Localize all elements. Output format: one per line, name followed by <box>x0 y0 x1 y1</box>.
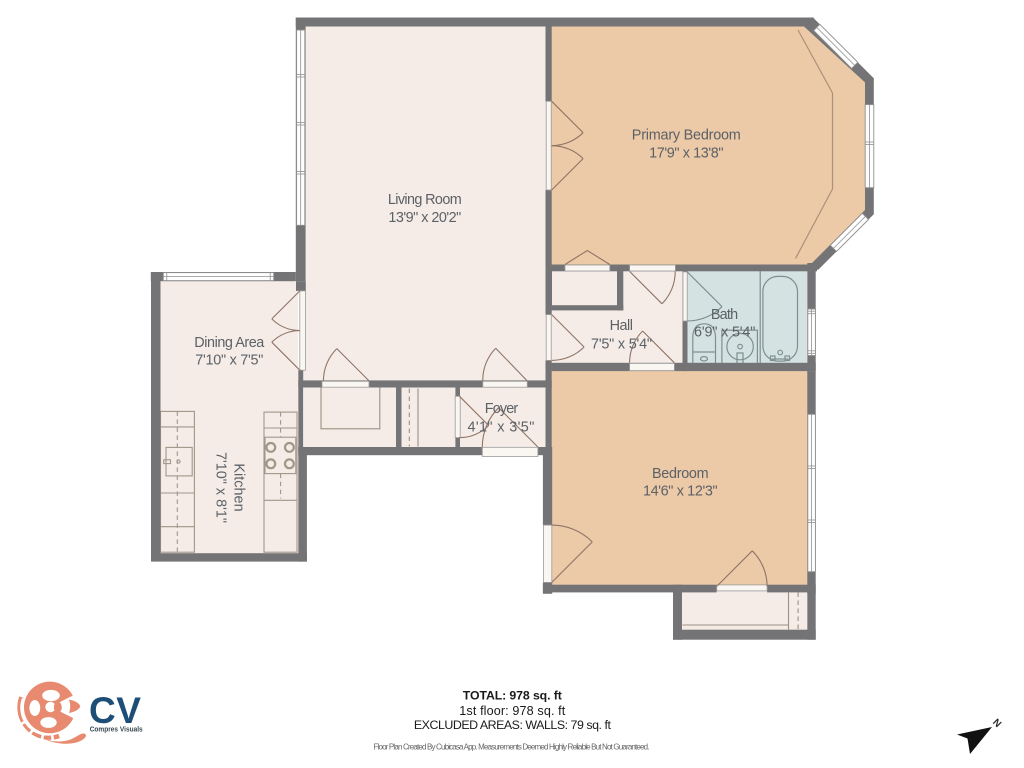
svg-text:Bath: Bath <box>711 307 738 323</box>
svg-text:4'1" x 3'5": 4'1" x 3'5" <box>468 419 535 435</box>
svg-text:6'9" x 5'4": 6'9" x 5'4" <box>694 324 755 340</box>
svg-text:14'6" x 12'3": 14'6" x 12'3" <box>643 484 718 500</box>
svg-text:TOTAL: 978 sq. ft: TOTAL: 978 sq. ft <box>463 689 562 703</box>
svg-text:17'9" x 13'8": 17'9" x 13'8" <box>649 145 723 161</box>
svg-text:Compres Visuals: Compres Visuals <box>90 725 143 734</box>
svg-text:Foyer: Foyer <box>485 401 519 417</box>
svg-text:7'10" x 8'1": 7'10" x 8'1" <box>213 452 229 523</box>
svg-text:Dining Area: Dining Area <box>194 335 264 351</box>
svg-text:7'5" x 5'4": 7'5" x 5'4" <box>591 337 652 353</box>
svg-text:Primary Bedroom: Primary Bedroom <box>632 128 741 144</box>
svg-text:Bedroom: Bedroom <box>652 466 709 482</box>
svg-text:Floor Plan Created By Cubicasa: Floor Plan Created By Cubicasa App. Meas… <box>374 743 650 752</box>
svg-text:13'9" x 20'2": 13'9" x 20'2" <box>388 210 461 226</box>
svg-text:N: N <box>990 717 1003 730</box>
svg-text:Living Room: Living Room <box>388 192 462 208</box>
svg-text:7'10" x 7'5": 7'10" x 7'5" <box>195 352 263 368</box>
svg-text:Hall: Hall <box>610 318 633 334</box>
svg-text:EXCLUDED AREAS: WALLS: 79 sq.: EXCLUDED AREAS: WALLS: 79 sq. ft <box>414 718 612 732</box>
svg-text:1st floor: 978 sq. ft: 1st floor: 978 sq. ft <box>459 704 566 718</box>
svg-text:Kitchen: Kitchen <box>231 463 247 511</box>
